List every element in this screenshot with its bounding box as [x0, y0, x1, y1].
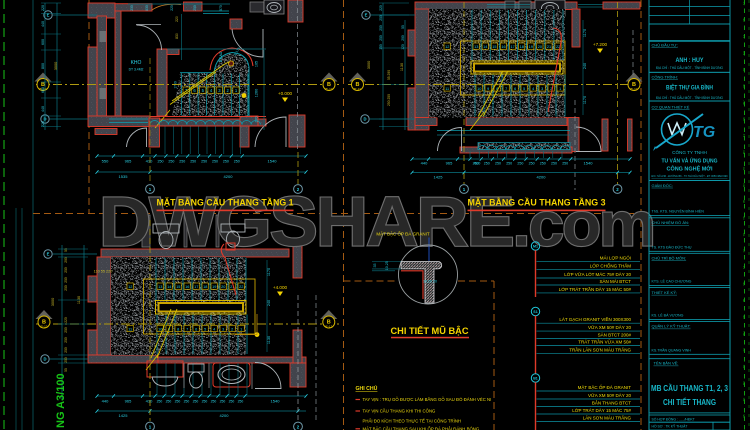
svg-text:SH: SH — [742, 51, 746, 55]
svg-text:10,25: 10,25 — [385, 261, 389, 270]
svg-text:CHI TIẾT MŨ BẬC: CHI TIẾT MŨ BẬC — [391, 325, 469, 337]
svg-text:110 55 220: 110 55 220 — [94, 270, 113, 274]
svg-text:TÊN BẢN VẼ:: TÊN BẢN VẼ: — [654, 361, 679, 366]
svg-text:830: 830 — [145, 5, 149, 11]
svg-text:1540: 1540 — [584, 161, 594, 166]
svg-text:1260: 1260 — [255, 89, 259, 97]
svg-text:12: 12 — [742, 249, 746, 253]
svg-text:55: 55 — [401, 25, 405, 29]
svg-text:2: 2 — [231, 327, 233, 331]
svg-text:SÀN BTCT 200#: SÀN BTCT 200# — [598, 332, 632, 338]
svg-text:1540: 1540 — [271, 399, 281, 404]
svg-text:05: 05 — [742, 299, 746, 303]
svg-text:17: 17 — [194, 285, 198, 289]
svg-text:5: 5 — [204, 327, 206, 331]
svg-text:240: 240 — [583, 63, 587, 69]
svg-text:250: 250 — [193, 400, 199, 404]
svg-text:LỚP TRÁT TRẦN DÀY 15 MÁC 50#: LỚP TRÁT TRẦN DÀY 15 MÁC 50# — [559, 286, 632, 292]
svg-text:410: 410 — [146, 399, 153, 404]
svg-text:55: 55 — [64, 248, 68, 252]
svg-text:1: 1 — [559, 87, 561, 91]
svg-text:DWGSHARE.com: DWGSHARE.com — [99, 183, 654, 261]
svg-text:1170: 1170 — [583, 96, 587, 104]
svg-text:1535: 1535 — [119, 174, 129, 179]
svg-text:MẶT BẬC ỐP ĐÁ GRANIT: MẶT BẬC ỐP ĐÁ GRANIT — [376, 231, 430, 237]
svg-text:550: 550 — [102, 159, 109, 164]
svg-text:+7.200: +7.200 — [593, 42, 608, 47]
svg-text:220: 220 — [64, 317, 68, 323]
svg-text:14: 14 — [483, 45, 487, 49]
svg-text:250: 250 — [379, 35, 383, 41]
svg-text:1425: 1425 — [119, 413, 129, 418]
svg-text:B.CAO: B.CAO — [219, 51, 223, 62]
svg-text:250: 250 — [211, 400, 217, 404]
svg-text:CÔNG NGHỆ MỚI: CÔNG NGHỆ MỚI — [667, 165, 713, 173]
svg-text:965: 965 — [446, 161, 453, 166]
svg-text:18: 18 — [203, 285, 207, 289]
svg-text:250: 250 — [157, 400, 163, 404]
svg-text:1130: 1130 — [267, 336, 271, 344]
svg-text:HỒ SƠ : TK KỸ THUẬT: HỒ SƠ : TK KỸ THUẬT — [652, 424, 688, 429]
svg-text:440: 440 — [421, 161, 428, 166]
svg-text:11: 11 — [128, 327, 132, 331]
svg-text:800: 800 — [41, 63, 45, 69]
svg-text:13: 13 — [158, 285, 162, 289]
svg-text:120: 120 — [401, 44, 405, 50]
svg-text:TK: TK — [742, 117, 746, 121]
svg-text:CÔNG TRÌNH:: CÔNG TRÌNH: — [652, 74, 678, 79]
svg-text:BV: BV — [742, 183, 746, 187]
svg-text:9: 9 — [487, 87, 489, 91]
svg-text:CHỦ NHIỆM ĐỒ ÁN:: CHỦ NHIỆM ĐỒ ÁN: — [652, 220, 690, 225]
svg-text:35: 35 — [373, 264, 377, 268]
svg-text:830: 830 — [175, 33, 179, 39]
svg-text:CHỦ ĐẦU TƯ:: CHỦ ĐẦU TƯ: — [652, 43, 678, 48]
svg-text:MẶT BẬC CẦU THANG SAU KHI ỐP Đ: MẶT BẬC CẦU THANG SAU KHI ỐP ĐÁ PHẢI ĐÁN… — [363, 426, 480, 430]
svg-text:22: 22 — [239, 285, 243, 289]
svg-text:250: 250 — [158, 160, 164, 164]
svg-text:KTS. LÊ CAO CHƯƠNG: KTS. LÊ CAO CHƯƠNG — [652, 279, 692, 284]
svg-text:965: 965 — [125, 399, 132, 404]
svg-text:QUẢN LÝ KỸ THUẬT:: QUẢN LÝ KỸ THUẬT: — [652, 324, 691, 329]
svg-text:600: 600 — [41, 39, 45, 45]
svg-text:6: 6 — [514, 87, 516, 91]
svg-text:BV: BV — [742, 331, 746, 335]
svg-text:600: 600 — [41, 87, 45, 93]
svg-text:12: 12 — [742, 348, 746, 352]
svg-text:220: 220 — [379, 5, 383, 11]
svg-text:12: 12 — [445, 45, 449, 49]
svg-text:TS. KTS ĐÀO ĐỨC THỤ: TS. KTS ĐÀO ĐỨC THỤ — [652, 245, 692, 250]
svg-text:MÁI LỢP NGÓI: MÁI LỢP NGÓI — [600, 255, 631, 261]
svg-text:B'-13: B'-13 — [41, 324, 48, 328]
svg-text:240: 240 — [267, 300, 271, 306]
svg-text:TU VẤN VÀ ỨNG DỤNG: TU VẤN VÀ ỨNG DỤNG — [662, 158, 718, 165]
svg-text:LỚP VỮA LÓT MÁC 75# DÀY 20: LỚP VỮA LÓT MÁC 75# DÀY 20 — [564, 271, 631, 277]
svg-text:TG: TG — [693, 124, 715, 141]
svg-text:440: 440 — [102, 399, 109, 404]
svg-text:TK: TK — [742, 68, 746, 72]
svg-text:LÁT GẠCH GRANIT VIỀN 300X300: LÁT GẠCH GRANIT VIỀN 300X300 — [559, 316, 631, 322]
svg-text:19: 19 — [529, 45, 533, 49]
svg-text:17: 17 — [510, 45, 514, 49]
svg-text:7: 7 — [186, 327, 188, 331]
svg-text:+0.000: +0.000 — [278, 91, 293, 96]
svg-text:15: 15 — [492, 45, 496, 49]
svg-text:290: 290 — [401, 35, 405, 41]
svg-text:250: 250 — [223, 160, 229, 164]
svg-text:19: 19 — [212, 285, 216, 289]
svg-text:11: 11 — [445, 87, 449, 91]
svg-text:220: 220 — [41, 5, 45, 11]
svg-text:1425: 1425 — [434, 175, 444, 180]
svg-text:250: 250 — [473, 162, 479, 166]
svg-text:3: 3 — [222, 327, 224, 331]
svg-text:MẶT BẰNG CẦU THANG TẦNG 3: MẶT BẰNG CẦU THANG TẦNG 3 — [468, 198, 606, 208]
svg-text:CHI TIẾT THANG: CHI TIẾT THANG — [663, 397, 716, 407]
svg-text:B'-13: B'-13 — [354, 87, 361, 91]
svg-text:E: E — [365, 13, 368, 18]
svg-text:250: 250 — [379, 15, 383, 21]
svg-text:250: 250 — [64, 267, 68, 273]
svg-text:250: 250 — [190, 160, 196, 164]
svg-text:VỮA XM 50# DÀY 20: VỮA XM 50# DÀY 20 — [588, 392, 632, 398]
svg-text:MẶT BẰNG CẦU THANG TẦNG 1: MẶT BẰNG CẦU THANG TẦNG 1 — [157, 198, 294, 208]
svg-text:3000: 3000 — [51, 298, 55, 306]
svg-text:PHẢI ĐO KÍCH THEO THỰC TẾ TẠI: PHẢI ĐO KÍCH THEO THỰC TẾ TẠI CÔNG TRÌNH — [363, 418, 462, 423]
svg-text:TK: TK — [742, 315, 746, 319]
svg-text:B'-13: B'-13 — [326, 87, 333, 91]
svg-text:6: 6 — [195, 327, 197, 331]
svg-text:230: 230 — [130, 5, 134, 11]
svg-text:05: 05 — [742, 18, 746, 22]
svg-text:LỚP CHỐNG THẤM: LỚP CHỐNG THẤM — [590, 263, 631, 269]
svg-text:250: 250 — [201, 160, 207, 164]
svg-text:16: 16 — [501, 45, 505, 49]
svg-text:KS.TRẦN QUANG VINH: KS.TRẦN QUANG VINH — [652, 349, 692, 353]
svg-text:7: 7 — [505, 87, 507, 91]
svg-text:250: 250 — [238, 400, 244, 404]
svg-text:B'-13: B'-13 — [631, 87, 638, 91]
svg-text:BIỆT THỰ GIA ĐÌNH: BIỆT THỰ GIA ĐÌNH — [666, 84, 713, 92]
svg-text:250: 250 — [193, 5, 197, 11]
svg-text:250: 250 — [551, 162, 557, 166]
svg-text:55: 55 — [64, 368, 68, 372]
svg-text:3000: 3000 — [367, 61, 371, 69]
svg-text:12: 12 — [742, 35, 746, 39]
svg-text:TK: TK — [742, 365, 746, 369]
svg-text:3000: 3000 — [54, 62, 58, 70]
svg-text:10,20 20: 10,20 20 — [423, 280, 437, 284]
svg-text:TK: TK — [742, 233, 746, 237]
svg-text:250: 250 — [64, 337, 68, 343]
svg-text:250: 250 — [64, 347, 68, 353]
svg-text:3: 3 — [541, 87, 543, 91]
svg-text:250: 250 — [166, 400, 172, 404]
svg-text:E: E — [47, 252, 50, 257]
svg-text:LỚP TRÁT DÀY 15 MÁC 75#: LỚP TRÁT DÀY 15 MÁC 75# — [572, 407, 631, 413]
svg-text:16: 16 — [185, 285, 189, 289]
svg-text:21: 21 — [547, 45, 551, 49]
svg-text:250: 250 — [175, 400, 181, 404]
svg-text:TK: TK — [742, 84, 746, 88]
svg-text:20: 20 — [538, 45, 542, 49]
svg-text:570: 570 — [219, 5, 223, 11]
svg-text:TRẦN LĂN SƠN MÀU TRẮNG: TRẦN LĂN SƠN MÀU TRẮNG — [569, 345, 631, 352]
svg-text:MẶT BẬC ỐP ĐÁ GRANIT: MẶT BẬC ỐP ĐÁ GRANIT — [578, 384, 632, 390]
svg-text:250: 250 — [562, 162, 568, 166]
svg-text:DT 3.4M2: DT 3.4M2 — [129, 68, 144, 72]
svg-text:965: 965 — [125, 159, 132, 164]
svg-text:ĐỊA CHỈ : THỦ DẦU MỘT - TỈNH B: ĐỊA CHỈ : THỦ DẦU MỘT - TỈNH BÌNH DƯƠNG — [656, 95, 723, 100]
svg-text:250: 250 — [64, 285, 68, 291]
svg-text:220: 220 — [170, 5, 174, 11]
svg-text:250: 250 — [379, 25, 383, 31]
svg-text:TAY VỊN : TRỤ GỖ ĐƯỢC LÀM BẰN: TAY VỊN : TRỤ GỖ ĐƯỢC LÀM BẰNG GỖ SAU ĐÓ… — [363, 397, 492, 402]
svg-text:GIÁM ĐỐC:: GIÁM ĐỐC: — [652, 183, 673, 188]
svg-text:ĐỊA CHỈ : THỦ DẦU MỘT - TỈNH B: ĐỊA CHỈ : THỦ DẦU MỘT - TỈNH BÌNH DƯƠNG — [656, 65, 723, 70]
svg-text:14: 14 — [167, 285, 171, 289]
svg-text:1: 1 — [240, 327, 242, 331]
svg-text:SÀN MÁI BTCT: SÀN MÁI BTCT — [599, 278, 631, 284]
svg-text:1130: 1130 — [400, 63, 404, 71]
svg-text:250: 250 — [64, 357, 68, 363]
svg-text:A3: A3 — [742, 1, 746, 5]
svg-text:VỮA XM 50# DÀY 20: VỮA XM 50# DÀY 20 — [588, 324, 632, 330]
svg-text:THIẾT KẾ KỸ:: THIẾT KẾ KỸ: — [652, 290, 678, 295]
svg-text:D: D — [363, 117, 366, 122]
svg-text:250: 250 — [202, 400, 208, 404]
svg-text:12: 12 — [742, 266, 746, 270]
svg-text:170: 170 — [255, 116, 259, 122]
svg-text:20: 20 — [221, 285, 225, 289]
svg-text:250: 250 — [220, 400, 226, 404]
svg-text:220: 220 — [175, 16, 179, 22]
svg-text:5: 5 — [523, 87, 525, 91]
svg-text:TK: TK — [742, 398, 746, 402]
svg-text:1170: 1170 — [583, 29, 587, 37]
svg-text:4200: 4200 — [224, 174, 234, 179]
svg-text:250: 250 — [212, 160, 218, 164]
svg-text:250: 250 — [484, 162, 490, 166]
svg-text:TK: TK — [742, 216, 746, 220]
svg-text:250: 250 — [529, 162, 535, 166]
svg-text:4: 4 — [213, 327, 215, 331]
svg-text:18: 18 — [520, 45, 524, 49]
svg-text:ThS. KTS. NGUYỄN ĐÌNH HIỀN: ThS. KTS. NGUYỄN ĐÌNH HIỀN — [652, 209, 705, 214]
svg-text:BV: BV — [742, 150, 746, 154]
svg-text:NG A3/100: NG A3/100 — [55, 373, 67, 428]
svg-text:GHI CHÚ: GHI CHÚ — [356, 385, 378, 392]
svg-text:250: 250 — [64, 327, 68, 333]
svg-text:MB CẦU THANG T1, 2, 3: MB CẦU THANG T1, 2, 3 — [651, 383, 728, 393]
svg-text:CÔNG TY TNHH: CÔNG TY TNHH — [672, 149, 707, 155]
svg-text:B1: B1 — [533, 377, 538, 381]
svg-text:250 250: 250 250 — [387, 94, 391, 106]
svg-text:BV: BV — [742, 381, 746, 385]
svg-text:D: D — [43, 357, 46, 362]
svg-text:150: 150 — [379, 44, 383, 50]
svg-text:M1: M1 — [533, 245, 538, 249]
svg-text:250: 250 — [517, 162, 523, 166]
svg-text:250: 250 — [234, 160, 240, 164]
svg-text:250: 250 — [540, 162, 546, 166]
svg-text:440: 440 — [41, 106, 45, 112]
svg-text:55 290: 55 290 — [387, 70, 391, 80]
svg-text:B'-13: B'-13 — [325, 324, 332, 328]
svg-text:250: 250 — [179, 160, 185, 164]
svg-text:290: 290 — [64, 257, 68, 263]
svg-text:1170: 1170 — [267, 268, 271, 276]
svg-text:250: 250 — [64, 277, 68, 283]
svg-text:250: 250 — [506, 162, 512, 166]
svg-text:8: 8 — [177, 327, 179, 331]
svg-text:12: 12 — [128, 285, 132, 289]
svg-text:BV: BV — [742, 100, 746, 104]
svg-text:410: 410 — [146, 159, 153, 164]
svg-text:250: 250 — [229, 400, 235, 404]
svg-text:15: 15 — [176, 285, 180, 289]
svg-text:4: 4 — [532, 87, 534, 91]
svg-text:LĂN SƠN MÀU TRẮNG: LĂN SƠN MÀU TRẮNG — [583, 414, 632, 421]
svg-text:BẢN THANG BTCT: BẢN THANG BTCT — [592, 400, 631, 406]
svg-text:05: 05 — [742, 414, 746, 418]
svg-text:TK: TK — [742, 167, 746, 171]
svg-text:4200: 4200 — [220, 413, 230, 418]
svg-text:05: 05 — [742, 200, 746, 204]
svg-text:S1: S1 — [533, 310, 537, 314]
svg-text:440: 440 — [41, 21, 45, 27]
svg-text:KS. LÊ BÁ VƯƠNG: KS. LÊ BÁ VƯƠNG — [652, 313, 684, 318]
svg-text:250: 250 — [168, 160, 174, 164]
svg-text:TK: TK — [742, 282, 746, 286]
svg-text:4200: 4200 — [537, 175, 547, 180]
svg-text:A3: A3 — [742, 133, 746, 137]
svg-text:10: 10 — [477, 87, 481, 91]
svg-text:250: 250 — [184, 400, 190, 404]
svg-text:13: 13 — [474, 45, 478, 49]
svg-text:250: 250 — [495, 162, 501, 166]
svg-text:CHỦ TRÌ BỘ MÔN:: CHỦ TRÌ BỘ MÔN: — [652, 256, 687, 261]
svg-text:+4.000: +4.000 — [273, 285, 288, 290]
svg-text:TAY VỊN CẦU THANG KHI THI CÔNG: TAY VỊN CẦU THANG KHI THI CÔNG — [363, 409, 437, 414]
svg-text:220: 220 — [41, 121, 45, 127]
svg-text:KHO: KHO — [131, 60, 142, 66]
svg-text:1540: 1540 — [268, 159, 278, 164]
svg-text:105: 105 — [255, 61, 259, 67]
svg-text:TRÁT TRẦN VỮA XM 50#: TRÁT TRẦN VỮA XM 50# — [578, 339, 631, 345]
svg-text:CƠ QUAN THIẾT KẾ: CƠ QUAN THIẾT KẾ — [652, 105, 690, 110]
svg-text:SỐ HỢP ĐỒNG : ....../HĐKT: SỐ HỢP ĐỒNG : ....../HĐKT — [652, 416, 695, 421]
svg-text:ANH : HUY: ANH : HUY — [676, 58, 704, 64]
